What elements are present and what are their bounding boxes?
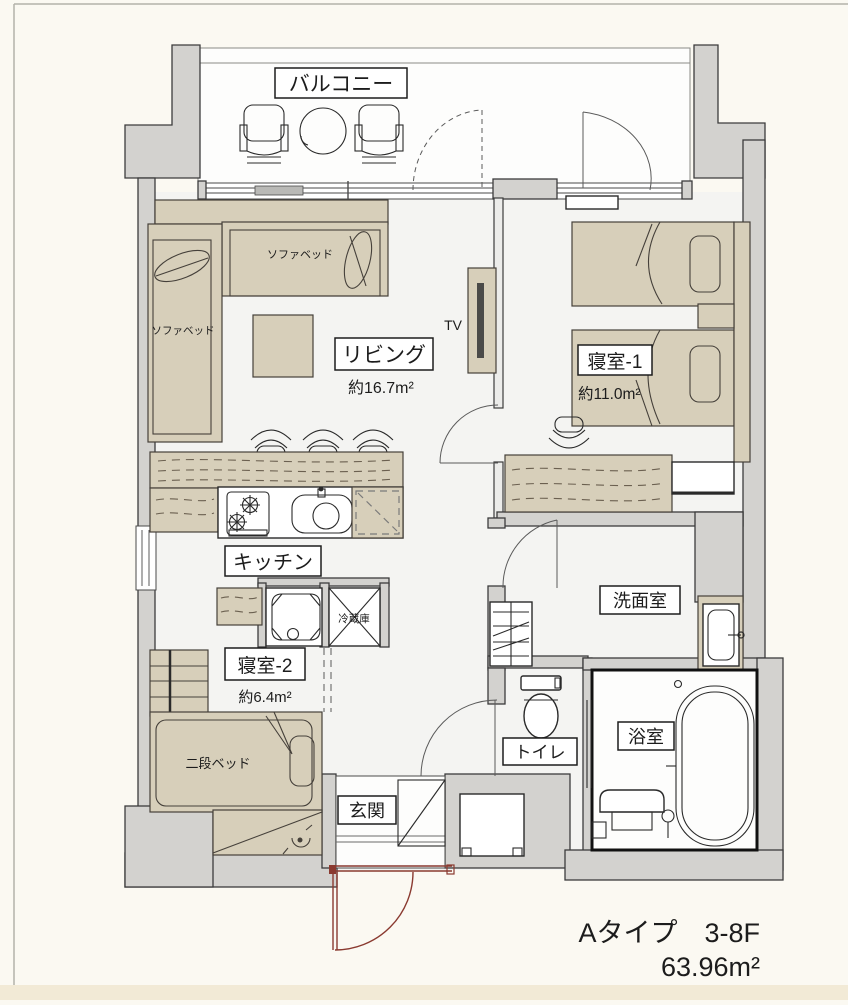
washer-pan-icon [266,588,322,646]
bunk-bed-label: 二段ベッド [185,756,250,771]
bedroom2-area: 約6.4m² [238,689,291,706]
wall-bottom-right [565,850,783,880]
entrance-label: 玄関 [349,801,385,821]
bedroom1-area: 約11.0m² [578,385,641,403]
bunk-dot [298,838,303,843]
coffee-table [253,315,313,377]
wall-entrance-left [322,774,336,868]
wall-living-bedroom1-lower [494,462,503,518]
unit-bath [592,670,757,850]
washbasin-icon [703,604,744,666]
wall-washroom-shaft [695,512,743,602]
balcony-floor [198,48,690,188]
wall-toilet-left [488,668,505,704]
footer-strip [0,985,848,1000]
bathroom-area [587,670,757,850]
nightstand [698,304,734,328]
window-jamb-left [198,181,206,199]
plan-type-label: Aタイプ 3-8F [578,918,760,948]
floor-plan: バルコニー ソファベッド ソファベッド リビング 約16.7m² TV 寝室-1… [0,0,848,1000]
living-label: リビング [342,344,426,367]
living-area: 約16.7m² [348,379,414,397]
sofa-back-strip [155,200,388,224]
kitchen-counter-left [150,488,218,532]
bedroom1-window-sill [566,196,618,209]
toilet-icon [521,676,561,738]
bunk-stairs [150,650,208,716]
sofa-bed-label: ソファベッド [267,249,333,261]
window-jamb-right [682,181,692,199]
bathroom-label: 浴室 [628,727,664,747]
washroom-label: 洗面室 [613,591,667,611]
meter-box [460,794,524,856]
tv-screen [477,283,484,358]
bed-1 [572,222,734,306]
kitchen-side-window [136,526,156,590]
bedroom2-label: 寝室-2 [238,655,293,677]
tv-label: TV [444,317,463,333]
sofa-bed-label: ソファベッド [152,325,215,337]
plan-area-label: 63.96m² [661,952,760,982]
balcony-label: バルコニー [289,73,394,96]
wall-appliance-c [380,583,389,647]
counter-small [217,588,262,625]
wall-corner-bottom-left [125,806,213,887]
toilet-area [521,676,561,738]
bed-headboard [734,222,750,462]
bedroom1-label: 寝室-1 [588,351,643,373]
wall-washroom-door-jamb [488,518,505,528]
linen-shelf-icon [490,602,532,666]
kitchen-label: キッチン [233,552,313,574]
fridge-label: 冷蔵庫 [338,612,370,625]
toilet-label: トイレ [515,743,566,762]
window-rail [255,186,303,195]
wall-window-divider [493,179,557,199]
wall-bathroom-right [757,658,783,870]
desk-cabinet [672,462,734,494]
